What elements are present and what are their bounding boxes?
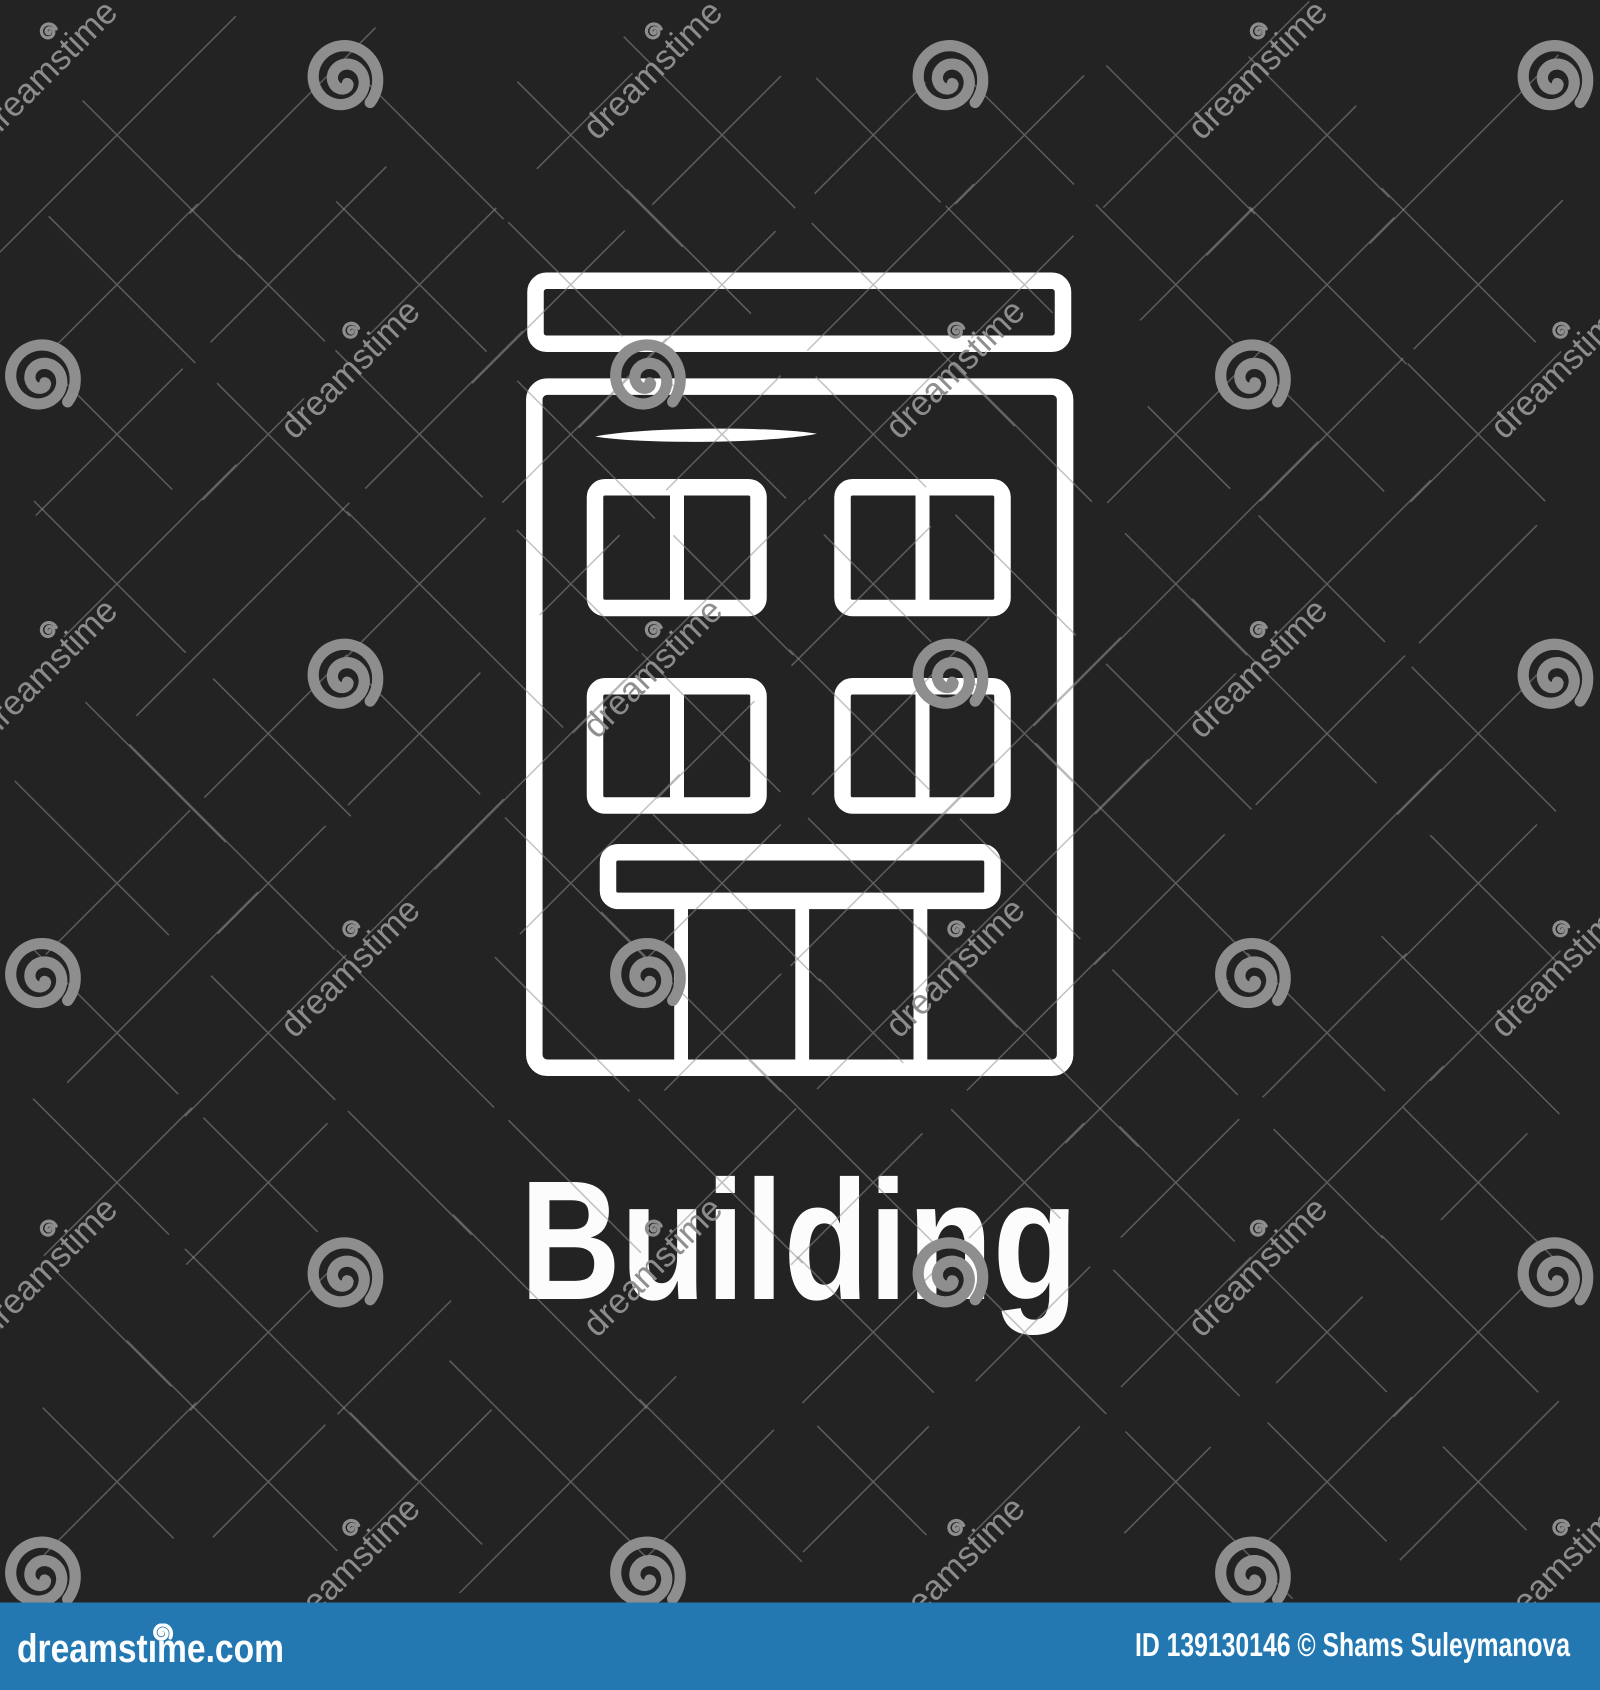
- svg-text:dreamstıme.com: dreamstıme.com: [17, 1627, 284, 1671]
- svg-text:ID 139130146 © Shams Suleymano: ID 139130146 © Shams Suleymanova: [1135, 1626, 1570, 1663]
